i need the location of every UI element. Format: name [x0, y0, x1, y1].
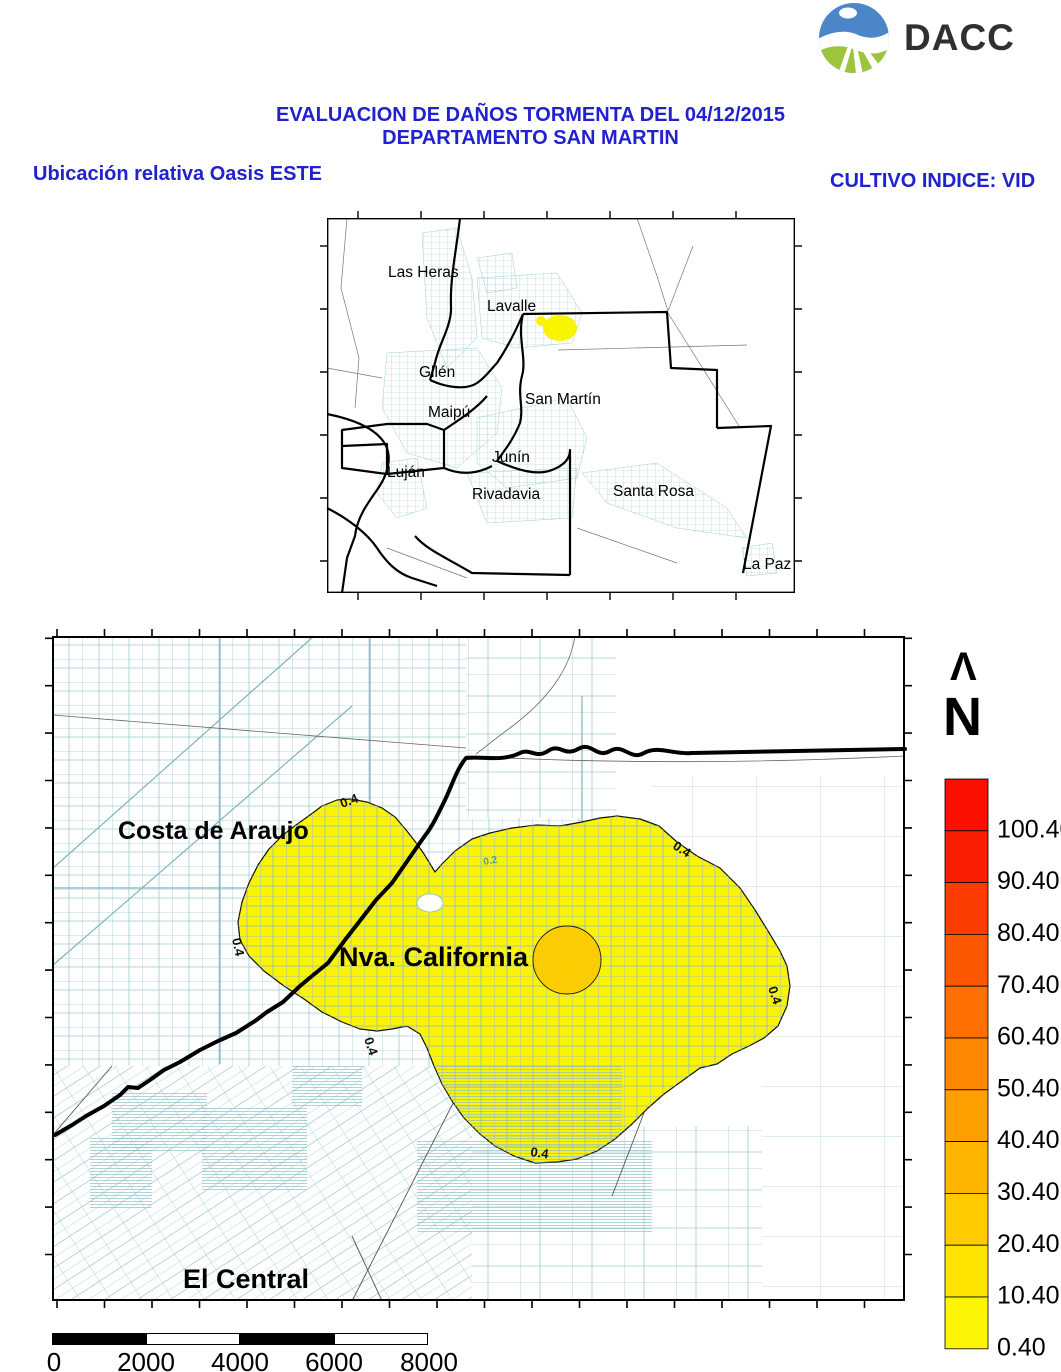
dacc-logo-icon [818, 2, 890, 74]
legend-value: 100.40 [997, 815, 1061, 843]
legend-value: 50.40 [997, 1074, 1060, 1102]
page-title-line1: EVALUACION DE DAÑOS TORMENTA DEL 04/12/2… [0, 104, 1061, 127]
legend-value: 90.40 [997, 867, 1060, 895]
legend-value: 30.40 [997, 1178, 1060, 1206]
scale-label: 2000 [117, 1347, 175, 1372]
legend-value: 40.40 [997, 1126, 1060, 1154]
subtitle-right: CULTIVO INDICE: VID [830, 170, 1035, 193]
dacc-logo: DACC [818, 2, 1015, 74]
legend-value: 0.40 [997, 1333, 1046, 1361]
undamaged-hole [417, 894, 443, 912]
damage-legend: 100.40 90.40 80.40 70.40 60.40 50.40 40.… [941, 779, 1061, 1359]
legend-value: 60.40 [997, 1023, 1060, 1051]
scale-label: 0 [47, 1347, 61, 1372]
scale-label: 4000 [211, 1347, 269, 1372]
inset-label-lavalle: Lavalle [487, 298, 536, 315]
contour-label: 0.4 [530, 1144, 551, 1161]
legend-value-labels: 100.40 90.40 80.40 70.40 60.40 50.40 40.… [997, 815, 1061, 1361]
scale-label: 6000 [305, 1347, 363, 1372]
inset-label-rivadavia: Rivadavia [472, 486, 540, 503]
inset-label-maipu: Maipú [428, 404, 470, 421]
legend-value: 20.40 [997, 1230, 1060, 1258]
label-costa-de-araujo: Costa de Araujo [118, 817, 309, 845]
legend-value: 70.40 [997, 971, 1060, 999]
map-document-page: DACC EVALUACION DE DAÑOS TORMENTA DEL 04… [0, 0, 1061, 1372]
damage-core-circle [533, 926, 601, 994]
scale-bar-segment [240, 1333, 334, 1345]
scale-label: 8000 [400, 1347, 458, 1372]
inset-label-gllen: Gllén [419, 364, 455, 381]
scale-bar-segment [334, 1333, 428, 1345]
label-el-central: El Central [183, 1264, 309, 1294]
scale-bar-segment [146, 1333, 240, 1345]
inset-label-santa-rosa: Santa Rosa [613, 483, 694, 500]
inset-location-map: Las Heras Lavalle Gllén Maipú San Martín… [327, 218, 795, 593]
north-arrow-caret-icon: Λ [950, 645, 1011, 689]
legend-color-bar [945, 779, 988, 1349]
page-title-line2: DEPARTAMENTO SAN MARTIN [0, 127, 1061, 150]
label-nva-california: Nva. California [339, 942, 529, 972]
dacc-logo-text: DACC [904, 17, 1015, 59]
inset-label-las-heras: Las Heras [388, 264, 459, 281]
north-arrow-letter: N [943, 689, 1011, 745]
scale-bar [52, 1333, 428, 1345]
north-arrow: Λ N [941, 645, 1011, 745]
legend-value: 10.40 [997, 1282, 1060, 1310]
scale-bar-labels: 0 2000 4000 6000 8000 [52, 1347, 492, 1372]
subtitle-left: Ubicación relativa Oasis ESTE [33, 163, 322, 186]
main-damage-map: 0.4 0.4 0.4 0.4 0.4 0.4 0.2 Costa de Ara… [52, 636, 905, 1301]
inset-label-lujan: Luján [387, 464, 425, 481]
inset-label-junin: Junín [492, 449, 530, 466]
scale-bar-segment [52, 1333, 146, 1345]
inset-label-la-paz: La Paz [743, 556, 791, 573]
inset-label-san-martin: San Martín [525, 391, 601, 408]
legend-value: 80.40 [997, 919, 1060, 947]
